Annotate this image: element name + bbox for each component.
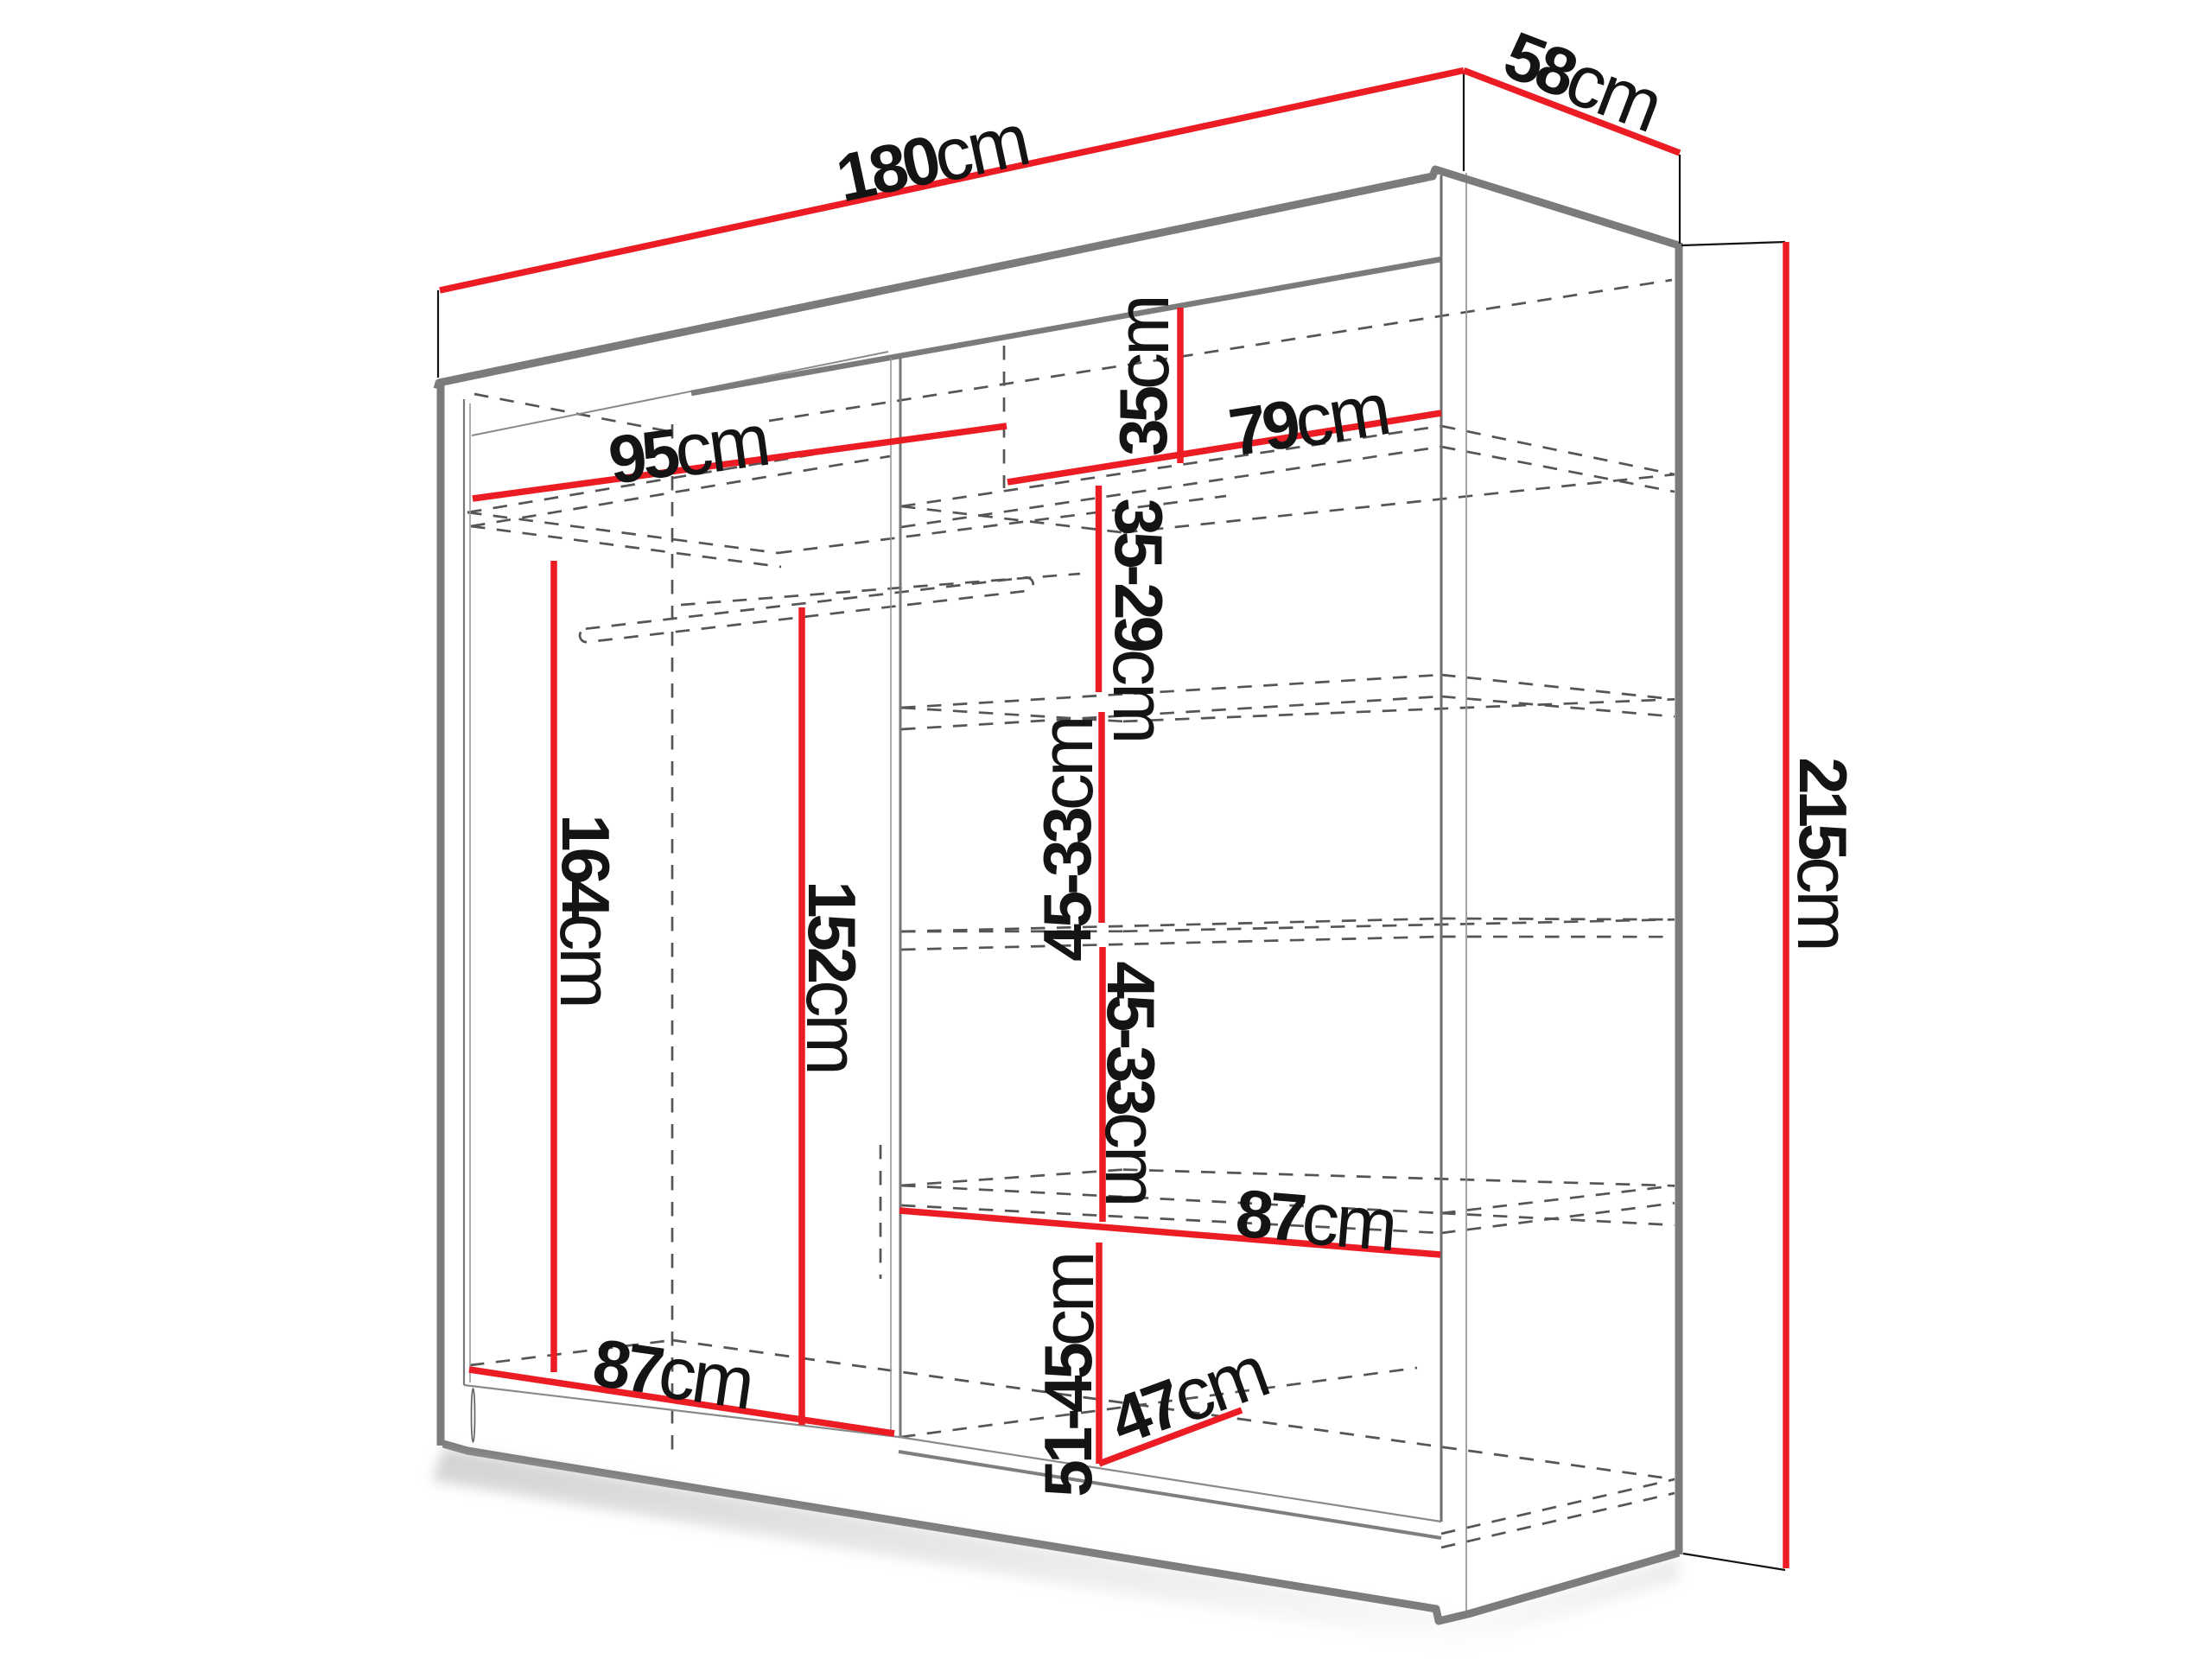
svg-text:51-45cm: 51-45cm bbox=[1027, 1254, 1109, 1497]
svg-text:164cm: 164cm bbox=[544, 814, 627, 1006]
svg-text:152cm: 152cm bbox=[791, 880, 874, 1072]
svg-text:215cm: 215cm bbox=[1782, 757, 1865, 949]
svg-text:45-33cm: 45-33cm bbox=[1090, 961, 1173, 1204]
svg-text:45-33cm: 45-33cm bbox=[1026, 718, 1109, 961]
svg-text:35cm: 35cm bbox=[1102, 297, 1185, 455]
svg-text:35-29cm: 35-29cm bbox=[1097, 498, 1180, 741]
